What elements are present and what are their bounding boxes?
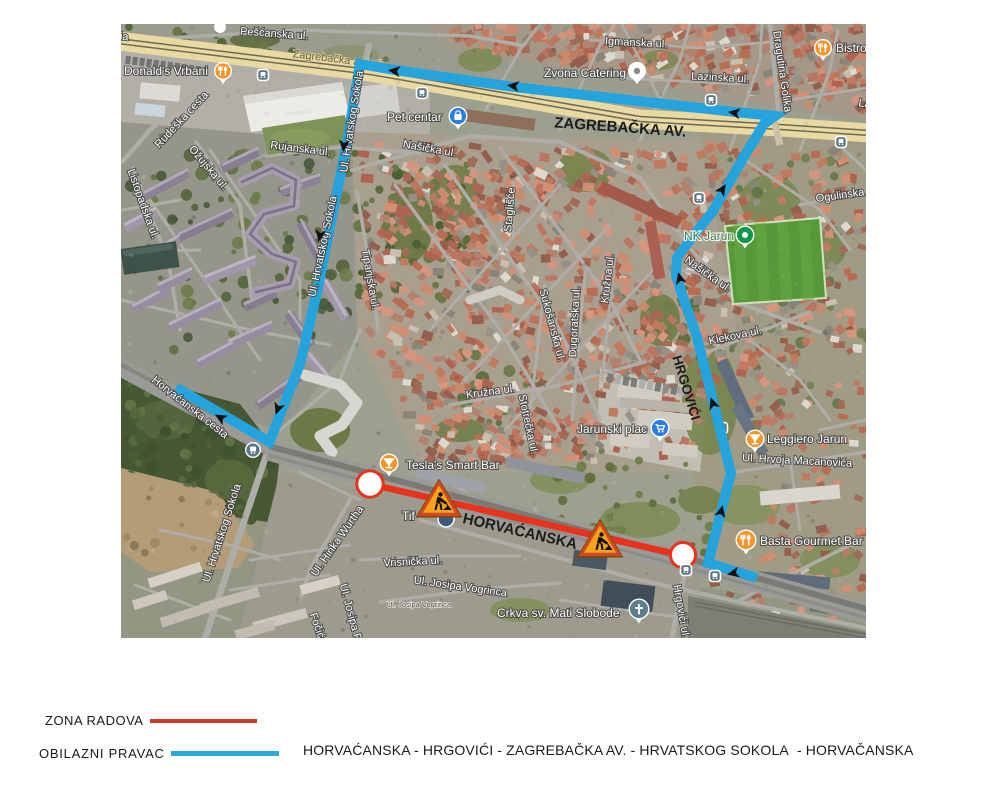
svg-text:Leggiero Jarun: Leggiero Jarun [767,432,847,446]
svg-text:Pet centar: Pet centar [387,110,442,124]
svg-text:Jarunski plac: Jarunski plac [577,422,647,436]
svg-text:NK Jarun: NK Jarun [684,229,734,243]
svg-text:Tesla's Smart Bar: Tesla's Smart Bar [406,458,500,472]
svg-text:Bistro: Bistro [836,41,867,55]
svg-text:Crkva sv. Mati Slobode: Crkva sv. Mati Slobode [497,606,620,620]
svg-text:Tif: Tif [402,509,416,523]
svg-text:Ul. Josipa Vogrinca: Ul. Josipa Vogrinca [387,600,452,609]
svg-text:Donald's Vrbani: Donald's Vrbani [124,64,208,78]
svg-text:Basta Gourmet Bar: Basta Gourmet Bar [760,534,863,548]
svg-text:Zvona Catering: Zvona Catering [544,66,626,80]
